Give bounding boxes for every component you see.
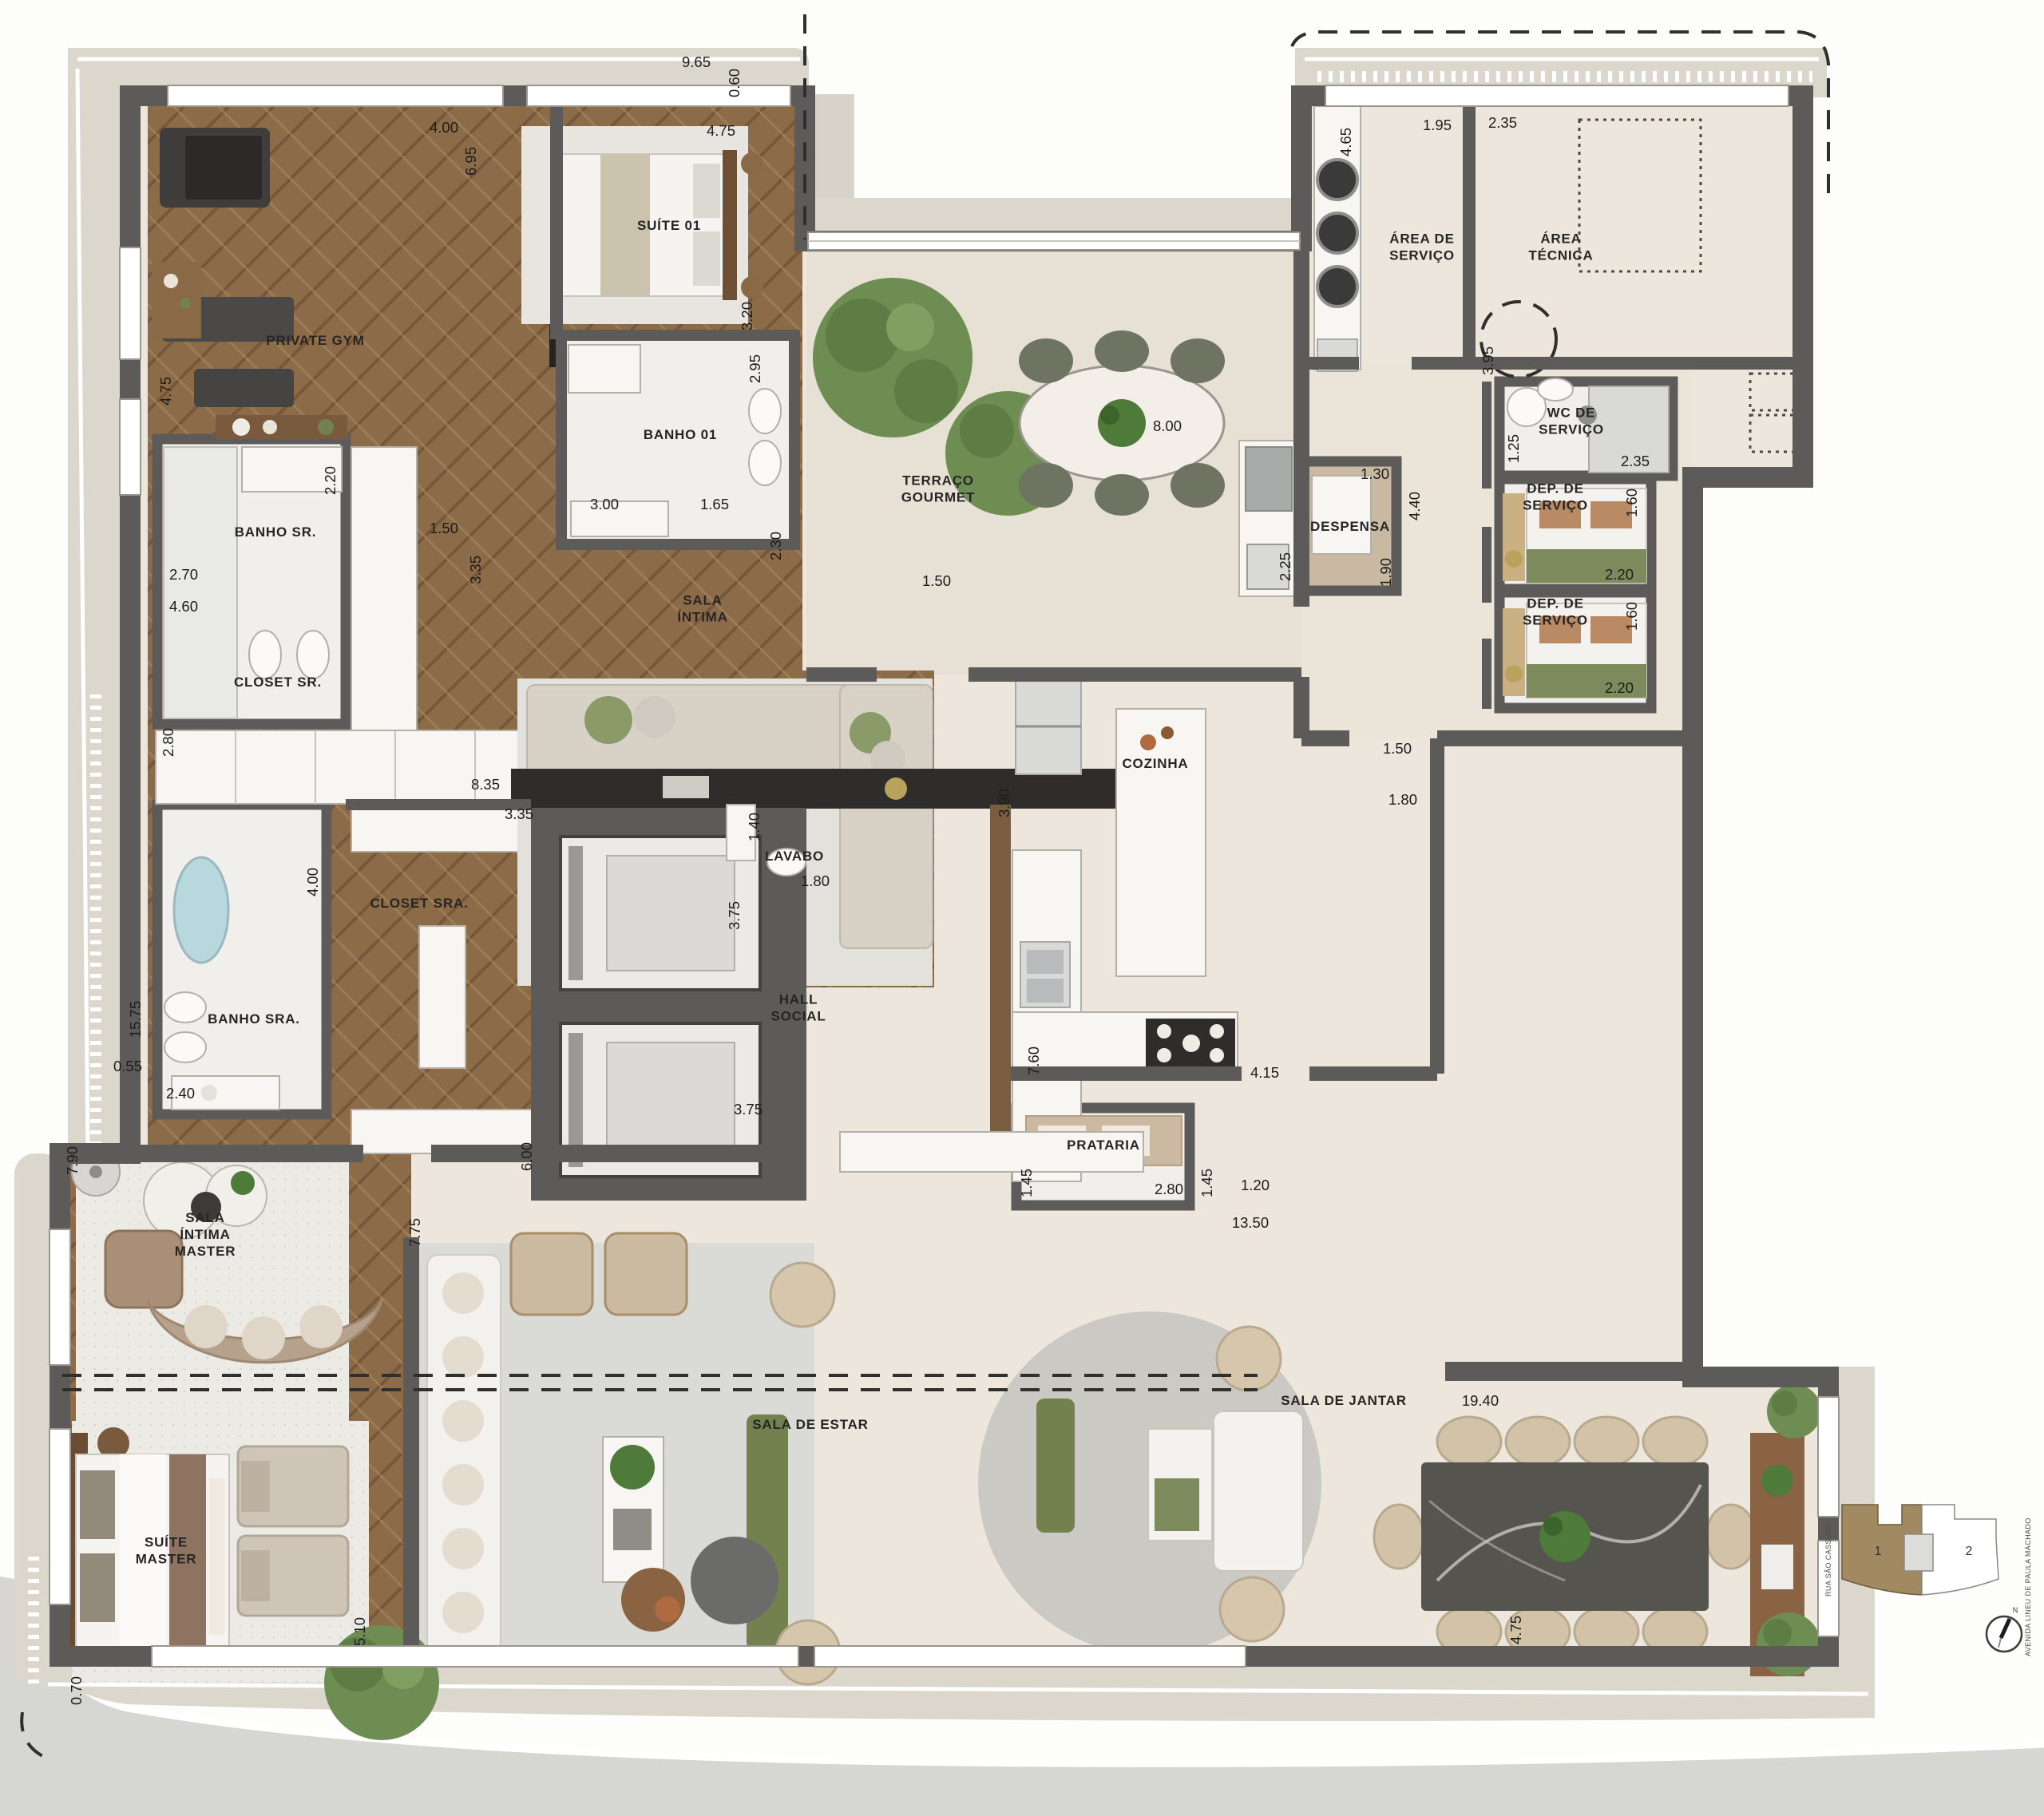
dim-label: 0.60: [726, 69, 743, 97]
despensa-shelf: [1312, 476, 1371, 554]
room-banho-sra: [157, 805, 327, 1114]
dim-label: 4.00: [304, 868, 321, 896]
room-label-banho-sra: BANHO SRA.: [208, 1011, 300, 1027]
dim-label: 1.80: [801, 872, 830, 889]
dim-label: 1.90: [1377, 558, 1394, 587]
dim-label: 1.65: [700, 496, 729, 512]
dim-label: 9.65: [682, 53, 711, 70]
dim-label: 1.60: [1623, 489, 1640, 517]
dim-label: 7.75: [406, 1218, 423, 1247]
dim-label: 7.60: [1025, 1046, 1042, 1075]
key-plan-street-left: RUA SÃO CASSIANO: [1824, 1521, 1832, 1596]
dim-label: 3.90: [996, 789, 1012, 817]
dim-label: 1.25: [1505, 434, 1522, 463]
dim-label: 4.65: [1337, 128, 1354, 156]
dim-label: 8.35: [471, 776, 500, 793]
room-label-sala-de-estar: SALA DE ESTAR: [752, 1417, 868, 1432]
sala-intima-master-furniture: [72, 1148, 382, 1421]
dim-label: 1.50: [430, 520, 458, 536]
dim-label: 3.35: [505, 805, 533, 822]
dim-label: 4.60: [169, 598, 198, 615]
dim-label: 1.45: [1198, 1169, 1215, 1197]
floorplan-canvas: 1 2 RUA SÃO CASSIANO AVENIDA LINEU DE PA…: [0, 0, 2044, 1816]
room-label-lavabo: LAVABO: [765, 849, 824, 864]
room-label-despensa: DESPENSA: [1310, 519, 1390, 534]
dim-label: 1.80: [1388, 791, 1417, 808]
dim-label: 2.35: [1621, 453, 1650, 469]
dim-label: 2.20: [1605, 566, 1634, 583]
dim-label: 2.20: [322, 466, 339, 495]
dim-label: 1.40: [746, 813, 763, 841]
north-label: N: [2013, 1606, 2018, 1614]
dim-label: 4.75: [707, 122, 735, 139]
dim-label: 5.10: [351, 1617, 368, 1646]
room-label-cozinha: COZINHA: [1122, 756, 1188, 771]
dim-label: 3.35: [467, 556, 484, 584]
room-label-closet-sra: CLOSET SRA.: [370, 896, 468, 911]
dim-label: 1.30: [1361, 465, 1389, 482]
suite-master-furniture: [65, 1421, 369, 1683]
room-label-suite-01: SUÍTE 01: [637, 218, 701, 233]
key-plan-street-right: AVENIDA LINEU DE PAULA MACHADO: [2024, 1517, 2032, 1656]
key-plan-unit-1-label: 1: [1875, 1545, 1882, 1558]
dim-label: 4.75: [157, 377, 174, 406]
dim-label: 3.20: [739, 302, 755, 330]
room-label-banho-01: BANHO 01: [644, 427, 717, 442]
dim-label: 7.90: [64, 1146, 81, 1175]
room-label-sala-de-jantar: SALA DE JANTAR: [1281, 1393, 1407, 1408]
dim-label: 13.50: [1232, 1214, 1269, 1231]
dim-label: 3.95: [1480, 346, 1496, 375]
dim-label: 2.80: [1155, 1181, 1183, 1197]
room-label-closet-sr: CLOSET SR.: [234, 675, 322, 690]
dim-label: 4.00: [430, 119, 458, 136]
dim-label: 2.70: [169, 566, 198, 583]
dim-label: 0.70: [68, 1676, 85, 1705]
key-plan-unit-2-label: 2: [1966, 1545, 1973, 1558]
dim-label: 2.20: [1605, 679, 1634, 696]
dim-label: 0.55: [113, 1058, 142, 1074]
dim-label: 1.50: [1383, 740, 1412, 757]
dim-label: 8.00: [1153, 417, 1182, 434]
dim-label: 3.00: [590, 496, 619, 512]
room-label-prataria: PRATARIA: [1067, 1137, 1140, 1153]
dim-label: 15.75: [127, 1001, 144, 1038]
dim-label: 1.45: [1018, 1169, 1035, 1197]
dim-label: 3.75: [734, 1101, 763, 1118]
dim-label: 4.75: [1507, 1616, 1524, 1644]
dim-label: 2.35: [1488, 114, 1517, 131]
dim-label: 1.50: [922, 572, 951, 589]
dim-label: 2.30: [767, 532, 784, 560]
dim-label: 2.80: [160, 728, 176, 757]
floorplan-page: 1 2 RUA SÃO CASSIANO AVENIDA LINEU DE PA…: [0, 0, 2044, 1816]
dim-label: 1.60: [1623, 602, 1640, 631]
dim-label: 1.95: [1423, 117, 1452, 133]
dim-label: 4.15: [1250, 1064, 1279, 1081]
dim-label: 2.95: [747, 354, 763, 383]
key-plan-core: [1904, 1534, 1933, 1571]
dim-label: 19.40: [1462, 1392, 1499, 1409]
dim-label: 6.95: [462, 147, 479, 176]
room-label-private-gym: PRIVATE GYM: [266, 333, 364, 348]
room-label-banho-sr: BANHO SR.: [235, 524, 317, 540]
dim-label: 2.40: [166, 1085, 195, 1102]
dim-label: 4.40: [1406, 492, 1423, 520]
dim-label: 1.20: [1241, 1177, 1270, 1193]
dim-label: 2.25: [1277, 552, 1293, 581]
dim-label: 3.75: [726, 901, 743, 930]
dim-label: 6.00: [518, 1142, 535, 1171]
